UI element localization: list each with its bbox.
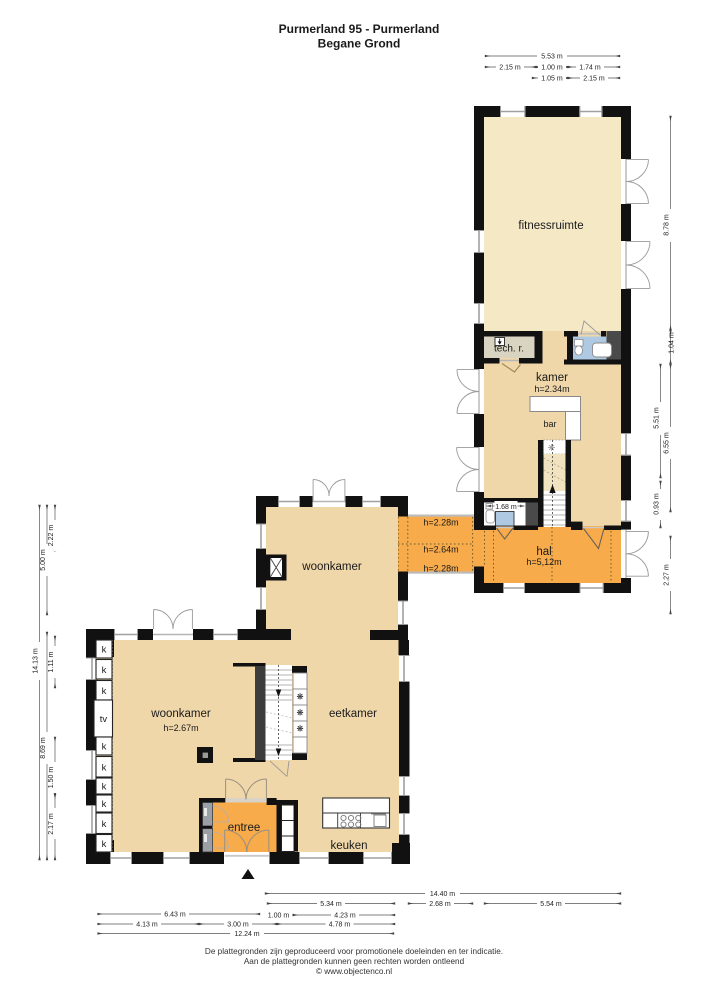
svg-text:❋: ❋ [296, 724, 304, 734]
svg-text:1.68 m: 1.68 m [495, 504, 517, 511]
svg-text:bar: bar [543, 419, 556, 429]
svg-text:2.15 m: 2.15 m [499, 65, 521, 72]
svg-text:h=2.64m: h=2.64m [423, 545, 458, 555]
svg-text:5.54 m: 5.54 m [540, 901, 562, 908]
svg-text:5.00 m: 5.00 m [40, 549, 47, 571]
svg-text:14.13 m: 14.13 m [33, 648, 40, 673]
svg-text:2.27 m: 2.27 m [664, 564, 671, 586]
svg-text:1.00 m: 1.00 m [541, 65, 563, 72]
svg-text:eetkamer: eetkamer [329, 708, 377, 720]
svg-text:1.74 m: 1.74 m [579, 65, 601, 72]
svg-text:❋: ❋ [296, 692, 304, 702]
svg-text:12.24 m: 12.24 m [234, 931, 259, 938]
svg-text:woonkamer: woonkamer [150, 708, 211, 720]
svg-text:2.22 m: 2.22 m [48, 525, 55, 547]
svg-text:2.17 m: 2.17 m [48, 813, 55, 835]
svg-text:k: k [102, 799, 107, 810]
svg-text:14.40 m: 14.40 m [430, 891, 455, 898]
svg-text:h=2.28m: h=2.28m [423, 518, 458, 528]
svg-text:❋: ❋ [296, 708, 304, 718]
svg-text:k: k [102, 645, 107, 656]
svg-text:2.15 m: 2.15 m [583, 76, 605, 83]
svg-text:h=2.67m: h=2.67m [163, 723, 198, 733]
svg-text:k: k [102, 819, 107, 830]
svg-text:k: k [102, 782, 107, 793]
svg-text:De plattegronden zijn geproduc: De plattegronden zijn geproduceerd voor … [205, 947, 503, 956]
svg-text:© www.objectenco.nl: © www.objectenco.nl [316, 967, 392, 976]
svg-text:k: k [102, 686, 107, 697]
svg-text:kamer: kamer [536, 372, 568, 384]
svg-text:tv: tv [100, 714, 108, 725]
svg-text:k: k [102, 665, 107, 676]
svg-text:4.23 m: 4.23 m [334, 913, 356, 920]
svg-text:h=2.34m: h=2.34m [534, 384, 569, 394]
svg-text:0.93 m: 0.93 m [654, 493, 661, 515]
svg-text:Begane Grond: Begane Grond [318, 37, 401, 51]
svg-text:k: k [102, 839, 107, 850]
svg-text:Aan de plattegronden kunnen ge: Aan de plattegronden kunnen geen rechten… [244, 957, 465, 966]
svg-text:1.11 m: 1.11 m [48, 651, 55, 672]
svg-text:k: k [102, 742, 107, 753]
svg-text:keuken: keuken [330, 840, 367, 852]
svg-text:k: k [102, 763, 107, 774]
svg-text:6.43 m: 6.43 m [164, 912, 186, 919]
svg-text:h=2.28m: h=2.28m [423, 564, 458, 574]
svg-text:1.50 m: 1.50 m [48, 767, 55, 789]
svg-text:8.78 m: 8.78 m [664, 214, 671, 236]
svg-text:woonkamer: woonkamer [301, 561, 362, 573]
svg-text:1.04 m: 1.04 m [669, 332, 676, 354]
svg-text:3.00 m: 3.00 m [227, 922, 249, 929]
svg-text:4.78 m: 4.78 m [329, 922, 351, 929]
svg-text:5.34 m: 5.34 m [320, 901, 342, 908]
svg-text:2.68 m: 2.68 m [429, 901, 451, 908]
svg-text:1.00 m: 1.00 m [268, 913, 290, 920]
svg-text:5.51 m: 5.51 m [654, 407, 661, 429]
svg-text:6.55 m: 6.55 m [664, 432, 671, 454]
svg-text:8.69 m: 8.69 m [40, 737, 47, 759]
svg-text:1.05 m: 1.05 m [541, 76, 563, 83]
svg-text:h=5,12m: h=5,12m [526, 557, 561, 567]
svg-text:entree: entree [228, 822, 261, 834]
svg-text:fitnessruimte: fitnessruimte [518, 220, 583, 232]
svg-text:4.13 m: 4.13 m [136, 922, 158, 929]
svg-text:5.53 m: 5.53 m [541, 54, 563, 61]
svg-text:Purmerland 95 - Purmerland: Purmerland 95 - Purmerland [279, 22, 440, 36]
